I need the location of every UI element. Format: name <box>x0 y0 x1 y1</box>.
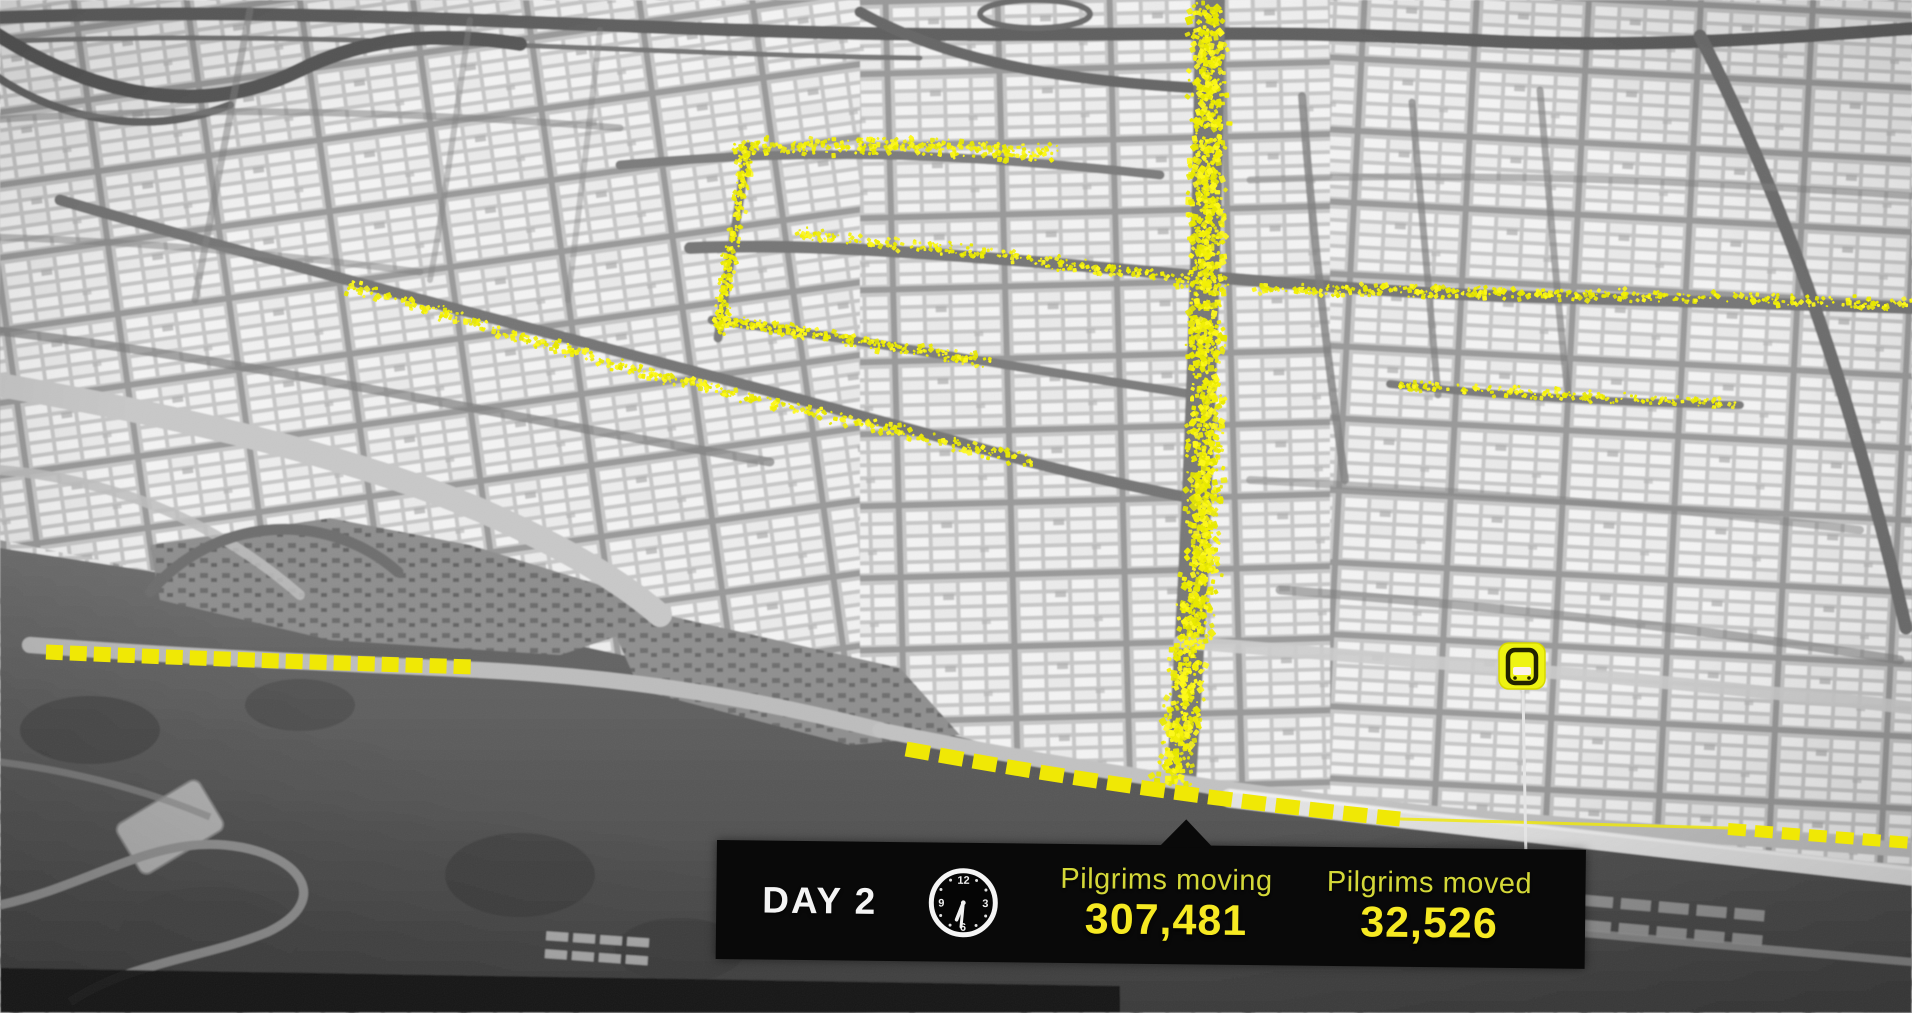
svg-text:3: 3 <box>982 898 988 910</box>
svg-text:9: 9 <box>938 897 944 909</box>
stat-pilgrims-moving-value: 307,481 <box>1055 895 1278 947</box>
stat-pilgrims-moved: Pilgrims moved 32,526 <box>1323 866 1536 949</box>
svg-text:12: 12 <box>957 874 969 886</box>
status-bar-pointer <box>1159 819 1213 848</box>
day-label: DAY 2 <box>762 879 877 922</box>
simulation-screen: DAY 2 12 3 6 9 Pilgrims moving 307,481 P… <box>0 0 1912 1013</box>
stat-pilgrims-moved-value: 32,526 <box>1323 898 1536 949</box>
clock-icon: 12 3 6 9 <box>925 864 1002 941</box>
stat-pilgrims-moving-label: Pilgrims moving <box>1055 863 1277 899</box>
status-bar: DAY 2 12 3 6 9 Pilgrims moving 307,481 P… <box>716 840 1586 969</box>
stat-pilgrims-moved-label: Pilgrims moved <box>1323 866 1535 901</box>
stat-pilgrims-moving: Pilgrims moving 307,481 <box>1055 863 1278 947</box>
